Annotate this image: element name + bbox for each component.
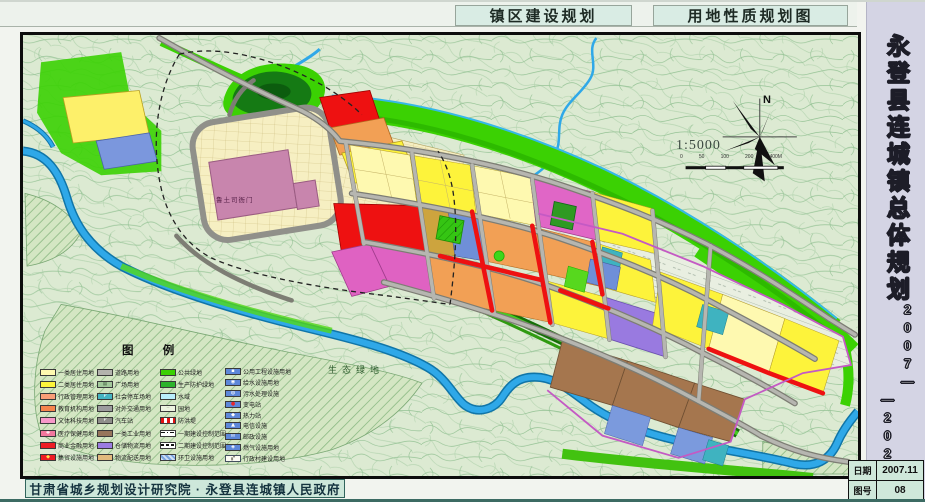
- map-frame: [20, 32, 861, 479]
- organization-box: 甘肃省城乡规划设计研究院 · 永登县连城镇人民政府: [25, 479, 345, 498]
- page: 镇区建设规划 用地性质规划图: [0, 0, 925, 502]
- date-value: 2007.11: [877, 461, 923, 480]
- plan-title-vertical: 永登县连城镇总体规划: [880, 34, 914, 304]
- sheet-number-value: 08: [877, 481, 923, 500]
- header-title-right: 用地性质规划图: [653, 5, 848, 26]
- map-canvas: [23, 35, 858, 476]
- plan-year-start: 2007—: [900, 302, 915, 392]
- header-title-left: 镇区建设规划: [455, 5, 632, 26]
- sidebar: 永登县连城镇总体规划 2007— —2020: [866, 2, 925, 502]
- sheet-number-label: 图号: [849, 481, 876, 500]
- date-label: 日期: [849, 461, 876, 480]
- title-block-table: 日期 2007.11 图号 08: [848, 460, 924, 501]
